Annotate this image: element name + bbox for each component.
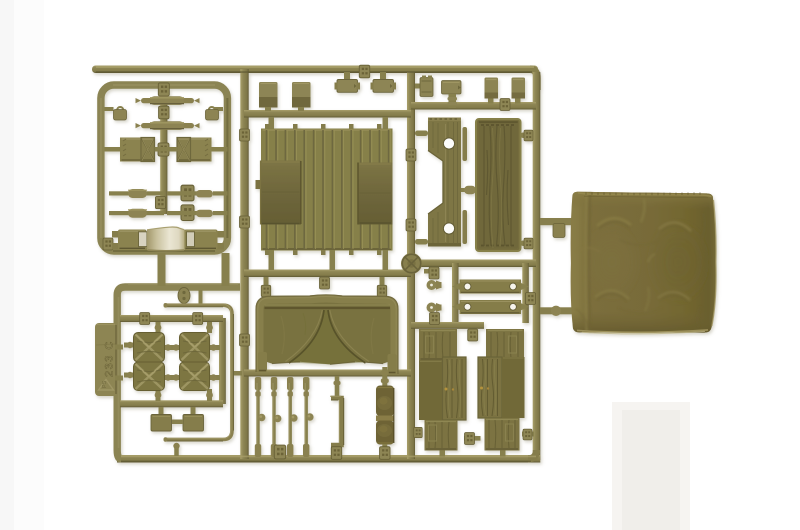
svg-text:PS: PS: [102, 380, 108, 388]
svg-text:233 C: 233 C: [104, 340, 116, 377]
